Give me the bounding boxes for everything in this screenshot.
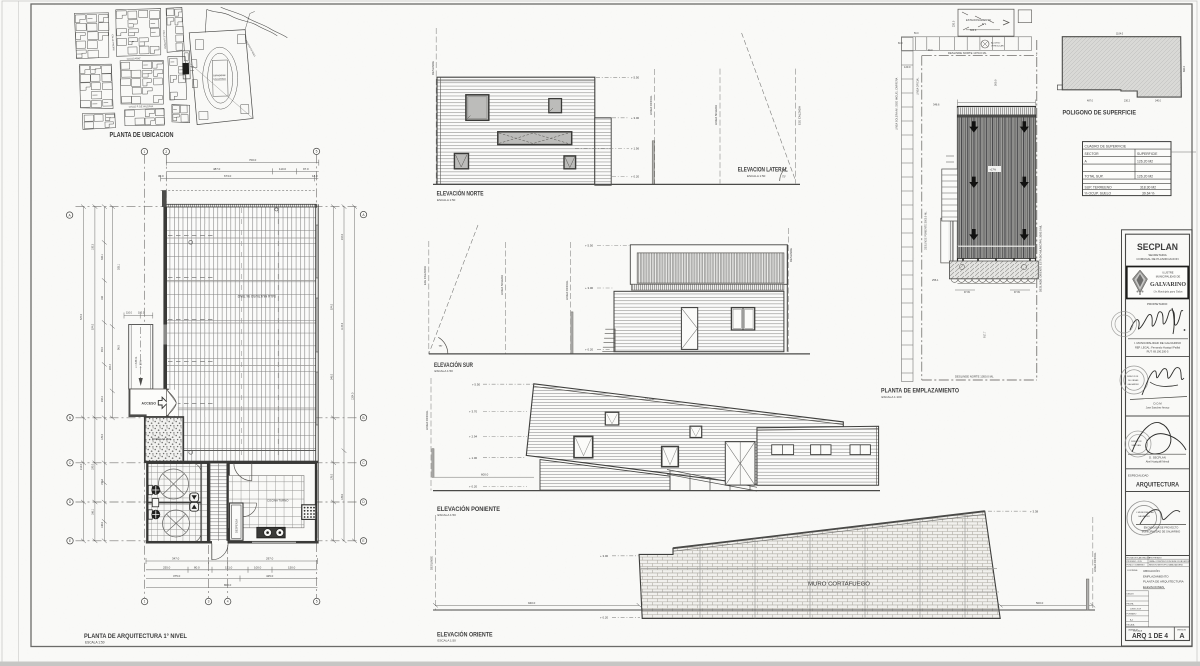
svg-text:97.09: 97.09 [964, 292, 970, 294]
svg-text:SUPERFICIE: SUPERFICIE [1137, 152, 1158, 156]
svg-text:500.0: 500.0 [994, 79, 998, 86]
svg-text:FORMATO: FORMATO [1127, 613, 1137, 616]
svg-text:+ 3.38: + 3.38 [1030, 509, 1039, 513]
svg-text:COCINA TURNO: COCINA TURNO [267, 499, 289, 503]
svg-text:+ 0.20: + 0.20 [600, 615, 609, 619]
svg-text:LINEA OFICIAL: LINEA OFICIAL [649, 95, 653, 115]
svg-text:% OCUP. SUELO: % OCUP. SUELO [1085, 192, 1112, 196]
svg-text:340.0: 340.0 [1155, 100, 1162, 103]
svg-text:DESLINDE: DESLINDE [431, 61, 435, 75]
svg-text:SALA MULTIUSO 94.75M2: SALA MULTIUSO 94.75M2 [237, 294, 276, 298]
svg-text:ESCALA 1:50: ESCALA 1:50 [85, 640, 105, 644]
svg-text:DESLINDE: DESLINDE [789, 248, 793, 262]
svg-text:346.6: 346.6 [933, 103, 940, 107]
svg-text:ESCALA 1:50: ESCALA 1:50 [435, 369, 454, 373]
svg-text:80.0: 80.0 [194, 565, 200, 569]
svg-text:ELEVACIÓN PONIENTE: ELEVACIÓN PONIENTE [437, 505, 500, 513]
svg-text:50.0: 50.0 [914, 33, 919, 35]
svg-text:ACCESO: ACCESO [991, 42, 1001, 45]
svg-text:5: 5 [316, 150, 318, 154]
svg-text:97.0: 97.0 [303, 167, 309, 171]
svg-text:Abel Huaiquifil Mendi: Abel Huaiquifil Mendi [1146, 460, 1170, 463]
svg-text:LINEA OFICIAL: LINEA OFICIAL [565, 280, 569, 300]
svg-text:FECHA DE ELABORACION: FECHA DE ELABORACION [1127, 556, 1151, 559]
svg-text:POLIGONO DE SUPERFICIE: POLIGONO DE SUPERFICIE [1063, 111, 1137, 117]
svg-text:LINEA SOLERA AV. JOSE MIGUEL C: LINEA SOLERA AV. JOSE MIGUEL CARRERA [896, 77, 899, 130]
svg-text:+ 0.20: + 0.20 [469, 485, 478, 489]
svg-text:318.30 M2: 318.30 M2 [1140, 185, 1156, 189]
svg-text:138.6: 138.6 [101, 521, 104, 528]
svg-text:151.0: 151.0 [225, 565, 233, 569]
svg-text:ESCALA 1:50: ESCALA 1:50 [438, 513, 457, 517]
svg-text:BODEGA 5.0M2: BODEGA 5.0M2 [152, 437, 171, 441]
svg-text:126.20 M2: 126.20 M2 [1137, 159, 1153, 163]
svg-text:+ 2.94: + 2.94 [469, 435, 478, 439]
svg-text:PROPIETARIO: PROPIETARIO [1149, 556, 1162, 559]
svg-text:DESLINDE: DESLINDE [430, 556, 434, 570]
svg-text:230.2: 230.2 [1124, 100, 1131, 103]
svg-text:ESCALA 1:50: ESCALA 1:50 [438, 639, 457, 643]
svg-text:375.0: 375.0 [173, 574, 181, 578]
svg-text:ACCESO: ACCESO [142, 402, 157, 406]
svg-text:600.0: 600.0 [481, 473, 489, 477]
svg-text:GALVARINO: GALVARINO [1128, 383, 1140, 386]
svg-text:CALLE PRAT: CALLE PRAT [127, 57, 142, 60]
svg-text:110.0: 110.0 [126, 312, 133, 315]
svg-text:DESLINDE NORTE 1070.0 ML: DESLINDE NORTE 1070.0 ML [948, 51, 987, 55]
svg-text:574.0: 574.0 [80, 313, 83, 320]
svg-text:LINEA OFICIAL: LINEA OFICIAL [1093, 552, 1097, 572]
svg-text:+ 3.00: + 3.00 [600, 554, 609, 558]
svg-text:600.0: 600.0 [970, 29, 977, 32]
svg-text:ESCALA 1:100: ESCALA 1:100 [882, 395, 902, 399]
svg-text:MUNICIPALIDAD DE: MUNICIPALIDAD DE [1156, 274, 1181, 278]
svg-text:DE OBRAS: DE OBRAS [1128, 379, 1139, 382]
svg-text:ARQUITECTURA: ARQUITECTURA [1136, 482, 1179, 489]
svg-text:30.0: 30.0 [928, 50, 933, 52]
svg-text:PLANTA DE UBICACION: PLANTA DE UBICACION [110, 132, 174, 139]
svg-text:PROPIETARIO:: PROPIETARIO: [1147, 302, 1168, 306]
svg-text:176.0: 176.0 [101, 433, 104, 440]
svg-text:ARQ 1 DE 4: ARQ 1 DE 4 [1132, 631, 1168, 640]
svg-text:487.0: 487.0 [1087, 100, 1094, 103]
svg-text:PLANTA DE ARQUITECTURA 1° NIVE: PLANTA DE ARQUITECTURA 1° NIVEL [84, 632, 187, 640]
svg-text:+ 1.56: + 1.56 [631, 147, 640, 151]
svg-text:160: 160 [101, 295, 104, 300]
svg-text:39.64 %: 39.64 % [1142, 192, 1154, 196]
svg-text:100.0: 100.0 [254, 565, 262, 569]
svg-text:1: 1 [143, 150, 145, 154]
svg-text:EJE CALZADA: EJE CALZADA [423, 266, 427, 285]
svg-text:ESCALA: ESCALA [1127, 624, 1136, 627]
svg-text:4: 4 [227, 600, 229, 604]
svg-text:800.0: 800.0 [224, 583, 232, 587]
svg-text:156.0: 156.0 [101, 478, 104, 485]
svg-text:60.0: 60.0 [898, 43, 903, 45]
svg-text:230.0: 230.0 [953, 20, 956, 27]
svg-text:+ 5.50: + 5.50 [472, 382, 481, 386]
svg-text:120.0: 120.0 [904, 65, 911, 69]
svg-text:940.0: 940.0 [528, 601, 536, 605]
svg-text:346.0: 346.0 [330, 373, 333, 380]
svg-text:UBICACIÓN: UBICACIÓN [1143, 568, 1160, 573]
svg-text:RUT: 69.190.200-5: RUT: 69.190.200-5 [1147, 350, 1169, 354]
svg-text:EJE CALZADA: EJE CALZADA [798, 106, 802, 125]
svg-text:18.0: 18.0 [312, 174, 318, 178]
svg-text:190.0: 190.0 [92, 463, 95, 470]
svg-text:ELEVACIÓN SUR: ELEVACIÓN SUR [434, 361, 474, 369]
svg-text:+ 1.00: + 1.00 [469, 456, 478, 460]
svg-text:ELEVACIÓN ORIENTE: ELEVACIÓN ORIENTE [437, 631, 493, 639]
svg-text:75°: 75° [782, 175, 786, 179]
svg-text:97.09: 97.09 [1014, 292, 1020, 294]
svg-text:1: 1 [144, 600, 146, 604]
svg-text:Jose Sanchez Arroyo: Jose Sanchez Arroyo [1146, 406, 1170, 409]
svg-text:ENCARGADA DE PROYECTO: ENCARGADA DE PROYECTO [1144, 527, 1179, 530]
svg-text:DESLINDE ORIENTE ESTADIO MUNIC: DESLINDE ORIENTE ESTADIO MUNICIPAL 3000.… [1039, 224, 1043, 292]
svg-text:+ 0.20: + 0.20 [631, 175, 640, 179]
svg-text:ESTACIONAMIENTO: ESTACIONAMIENTO [966, 18, 991, 22]
svg-text:DESPENSA: DESPENSA [235, 519, 239, 533]
svg-text:PLANTA DE ARQUITECTURA: PLANTA DE ARQUITECTURA [1143, 580, 1184, 584]
svg-text:JUNIO 2019: JUNIO 2019 [1130, 608, 1142, 610]
svg-text:MURO CORTAFUEGO: MURO CORTAFUEGO [808, 582, 870, 588]
svg-text:204.2: 204.2 [101, 395, 104, 402]
svg-text:DIRECCION: DIRECCION [1127, 376, 1139, 378]
svg-text:90.0: 90.0 [101, 347, 104, 352]
svg-text:+ 3.00: + 3.00 [631, 116, 640, 120]
svg-text:244.0: 244.0 [341, 233, 344, 240]
svg-text:ELEVACIONES: ELEVACIONES [1143, 585, 1164, 589]
svg-text:DIBUJO: DIBUJO [1127, 594, 1135, 596]
svg-text:SECPLAN: SECPLAN [1132, 444, 1142, 447]
svg-text:150.0: 150.0 [288, 565, 296, 569]
svg-text:500.0: 500.0 [1036, 601, 1044, 605]
svg-text:LINEA OFICIAL: LINEA OFICIAL [917, 77, 920, 95]
svg-text:1104.0: 1104.0 [1116, 33, 1124, 36]
svg-text:N°1: N°1 [982, 22, 987, 26]
svg-text:+ 3.00: + 3.00 [585, 286, 594, 290]
svg-text:660.0: 660.0 [1183, 65, 1186, 72]
svg-text:2: 2 [165, 150, 167, 154]
svg-text:L= 3.88 m.: L= 3.88 m. [135, 356, 138, 368]
svg-text:D.O.M: D.O.M [1153, 402, 1162, 406]
svg-text:DESLINDE NORTE 1050.0 ML: DESLINDE NORTE 1050.0 ML [955, 375, 994, 379]
svg-text:126.20 M2: 126.20 M2 [1137, 174, 1153, 178]
svg-text:347.0: 347.0 [172, 557, 180, 561]
svg-text:ESCALA 1:50: ESCALA 1:50 [437, 198, 456, 202]
svg-text:ELEVACIÓN NORTE: ELEVACIÓN NORTE [437, 190, 484, 198]
svg-text:178.6: 178.6 [341, 493, 344, 500]
svg-text:Un Municipio para Todos: Un Municipio para Todos [1154, 291, 1183, 294]
svg-text:VEHICULAR: VEHICULAR [991, 45, 1004, 48]
svg-text:REGION: METROPOLITANA GALVRNO: REGION: METROPOLITANA GALVRNO [1149, 564, 1184, 567]
svg-text:I. MUNICIPALIDAD DE GALVARINO: I. MUNICIPALIDAD DE GALVARINO [1134, 341, 1182, 345]
svg-text:256.1: 256.1 [932, 278, 939, 282]
svg-text:178.0: 178.0 [330, 473, 333, 480]
svg-text:CONTIENE:: CONTIENE: [1127, 570, 1138, 572]
svg-text:287.4: 287.4 [109, 363, 112, 370]
svg-text:+ 5.50: + 5.50 [585, 244, 594, 248]
svg-text:A: A [1179, 631, 1184, 640]
svg-text:MUNICIPALIDAD DE GALVARINO: MUNICIPALIDAD DE GALVARINO [1142, 530, 1181, 533]
svg-text:SECPLAN: SECPLAN [1137, 241, 1178, 252]
svg-text:303.1: 303.1 [118, 263, 121, 270]
svg-text:487.0: 487.0 [213, 167, 221, 171]
svg-text:213.0: 213.0 [80, 463, 83, 470]
svg-text:GALVARINO: GALVARINO [1150, 282, 1186, 288]
svg-text:SECTOR: SECTOR [1085, 152, 1100, 156]
svg-text:100.3: 100.3 [92, 243, 95, 250]
svg-text:TOTAL SUP.: TOTAL SUP. [1085, 174, 1104, 178]
svg-text:1204.0: 1204.0 [351, 392, 354, 400]
svg-text:LINEA OFICIAL: LINEA OFICIAL [425, 410, 429, 430]
svg-text:LINEA SOLERA: LINEA SOLERA [714, 105, 718, 125]
svg-text:SUP. TERREENO: SUP. TERREENO [1085, 185, 1113, 189]
svg-text:CALLE P. DE VALDIVIA: CALLE P. DE VALDIVIA [129, 105, 154, 109]
svg-text:1174.0: 1174.0 [341, 322, 344, 330]
svg-text:917.7: 917.7 [983, 331, 987, 338]
svg-text:+ 3.70: + 3.70 [469, 410, 478, 414]
svg-text:REP. LEGAL: Fernando Huaiquil: REP. LEGAL: Fernando Huaiquil Paillal [1135, 346, 1181, 350]
svg-text:PLANTA DE EMPLAZAMIENTO: PLANTA DE EMPLAZAMIENTO [881, 389, 959, 395]
svg-text:CUADRO DE SUPERFICIE: CUADRO DE SUPERFICIE [1085, 144, 1127, 148]
svg-text:LINEA SOLERA: LINEA SOLERA [500, 275, 504, 295]
svg-text:ESCALA 1:50: ESCALA 1:50 [747, 174, 766, 178]
svg-text:OBRA: CONSTRUCCION SEDE CLUB D: OBRA: CONSTRUCCION SEDE CLUB DEPORT. [1149, 560, 1191, 563]
svg-text:96.0: 96.0 [118, 345, 121, 350]
svg-text:ELEVACION LATERAL: ELEVACION LATERAL [738, 168, 788, 174]
svg-text:FECHA: FECHA [1127, 603, 1134, 606]
svg-text:+ 5.50: + 5.50 [631, 75, 640, 79]
svg-text:GALVARINO: GALVARINO [213, 78, 226, 81]
svg-text:DESLINDE PONIENTE 3000.0 ML: DESLINDE PONIENTE 3000.0 ML [925, 211, 928, 250]
svg-text:100.0: 100.0 [138, 312, 145, 315]
svg-text:ILUSTRE: ILUSTRE [1163, 271, 1174, 275]
svg-text:673.0: 673.0 [224, 174, 232, 178]
svg-text:166.1: 166.1 [92, 508, 95, 515]
svg-text:FONDO: GOBIERNO: FONDO: GOBIERNO [1127, 565, 1146, 567]
svg-text:700.0: 700.0 [249, 158, 257, 162]
svg-text:30.0: 30.0 [158, 174, 164, 178]
svg-text:5: 5 [316, 600, 318, 604]
svg-text:+ 0.20: + 0.20 [585, 347, 594, 351]
svg-text:ESTADIO M.: ESTADIO M. [213, 74, 226, 77]
svg-text:574.0: 574.0 [330, 303, 333, 310]
svg-text:297.0: 297.0 [266, 557, 274, 561]
svg-text:ESPECIALIDAD: ESPECIALIDAD [1128, 473, 1148, 477]
svg-text:303.1: 303.1 [101, 253, 104, 260]
svg-text:255.0: 255.0 [163, 565, 171, 569]
svg-text:PROFESIO. CIVIL: PROFESIO. CIVIL [1127, 561, 1143, 563]
svg-text:110.0: 110.0 [279, 167, 286, 171]
svg-text:EMPLAZAMIENTO: EMPLAZAMIENTO [1143, 574, 1169, 578]
svg-text:COMUNAL DE PLANIFICACION: COMUNAL DE PLANIFICACION [1136, 257, 1178, 261]
svg-text:3: 3 [208, 600, 210, 604]
svg-text:75°: 75° [439, 344, 443, 348]
svg-text:i= 10%: i= 10% [140, 360, 143, 368]
svg-text:I. MUNICIPALIDAD: I. MUNICIPALIDAD [1136, 511, 1154, 514]
svg-text:574.0: 574.0 [92, 323, 95, 330]
svg-text:D. SECPLAN: D. SECPLAN [1149, 456, 1166, 460]
svg-text:+17%: +17% [990, 169, 997, 172]
svg-text:425.0: 425.0 [266, 574, 274, 578]
